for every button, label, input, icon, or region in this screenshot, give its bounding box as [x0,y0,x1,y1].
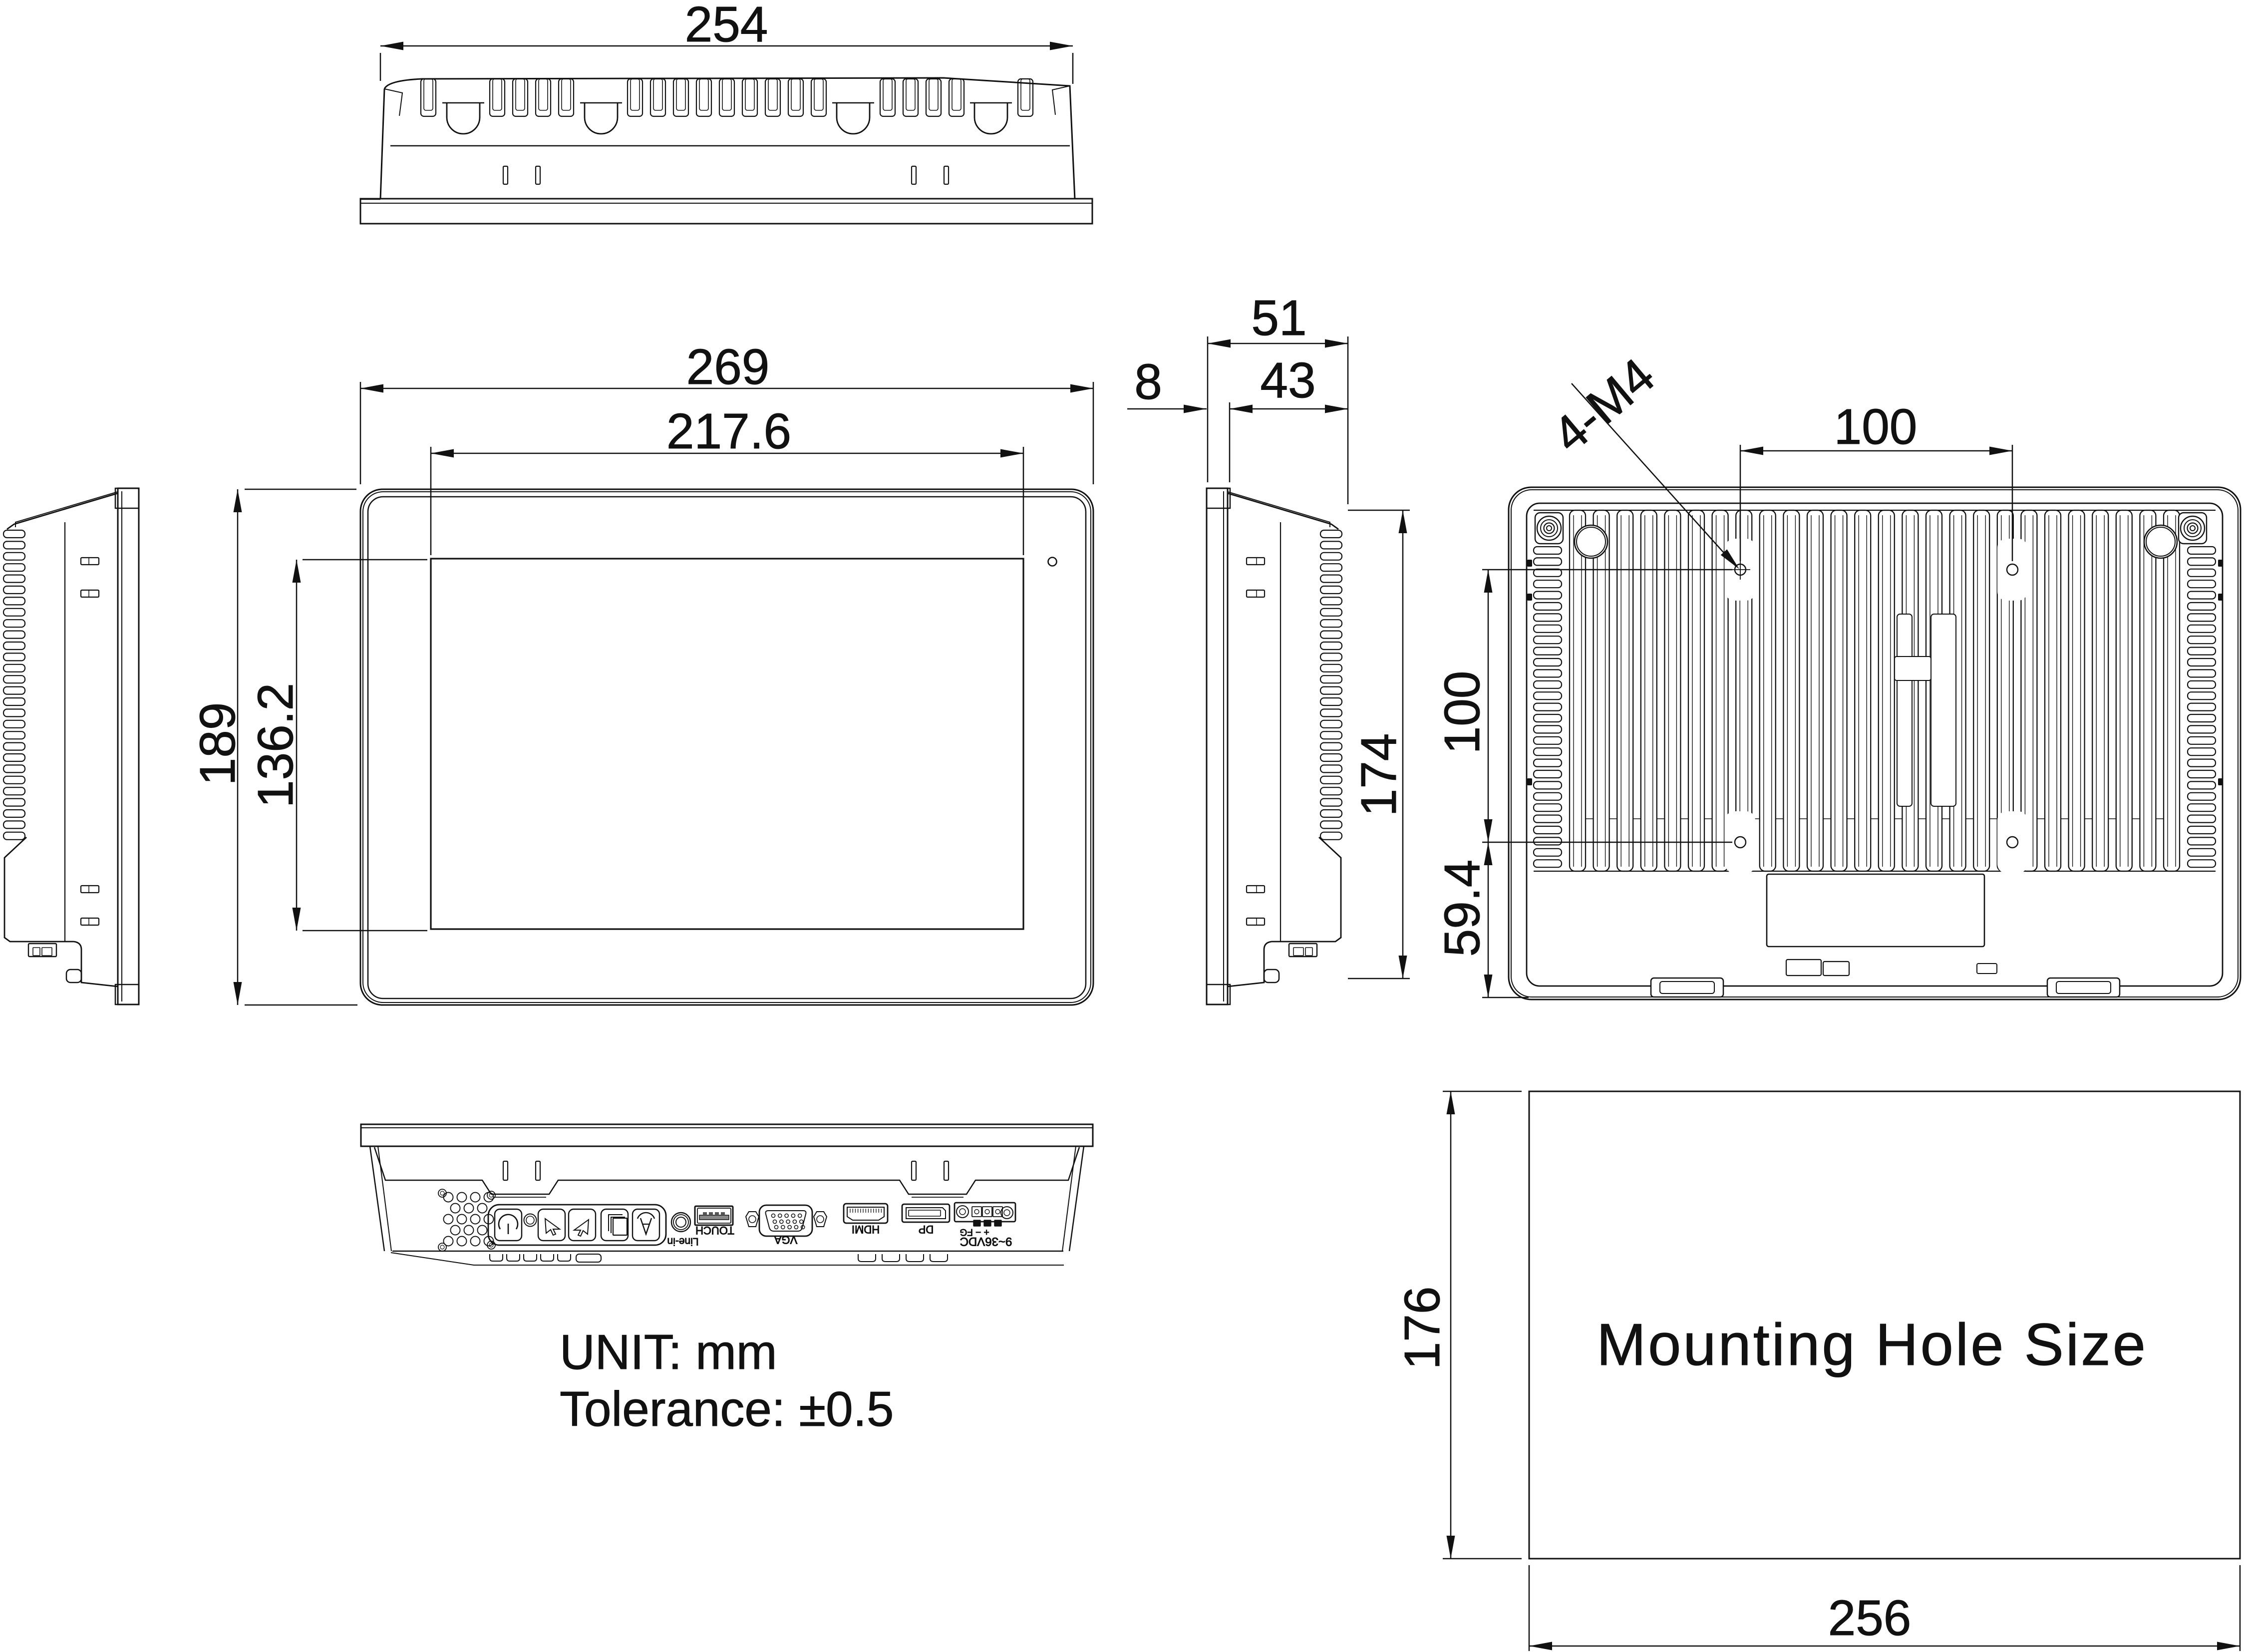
svg-text:43: 43 [1260,352,1315,408]
svg-text:TOUCH: TOUCH [695,1224,734,1237]
svg-text:Mounting Hole Size: Mounting Hole Size [1597,1312,2148,1378]
svg-text:100: 100 [1834,399,1918,455]
svg-text:254: 254 [685,0,768,52]
svg-text:269: 269 [686,339,770,395]
svg-text:HDMI: HDMI [852,1223,880,1236]
svg-text:DP: DP [919,1223,934,1236]
svg-text:59.4: 59.4 [1434,860,1490,957]
svg-text:Tolerance: ±0.5: Tolerance: ±0.5 [560,1381,894,1436]
svg-text:UNIT: mm: UNIT: mm [560,1324,777,1379]
svg-text:256: 256 [1828,1590,1912,1646]
svg-text:100: 100 [1434,671,1490,754]
svg-text:Line-in: Line-in [667,1236,698,1247]
svg-text:174: 174 [1351,733,1407,817]
svg-text:VGA: VGA [774,1234,797,1246]
svg-text:217.6: 217.6 [666,403,791,459]
svg-text:176: 176 [1394,1287,1450,1370]
svg-text:51: 51 [1251,290,1306,346]
svg-text:9~36VDC: 9~36VDC [960,1235,1012,1248]
svg-text:8: 8 [1134,354,1162,410]
svg-text:136.2: 136.2 [248,683,304,808]
